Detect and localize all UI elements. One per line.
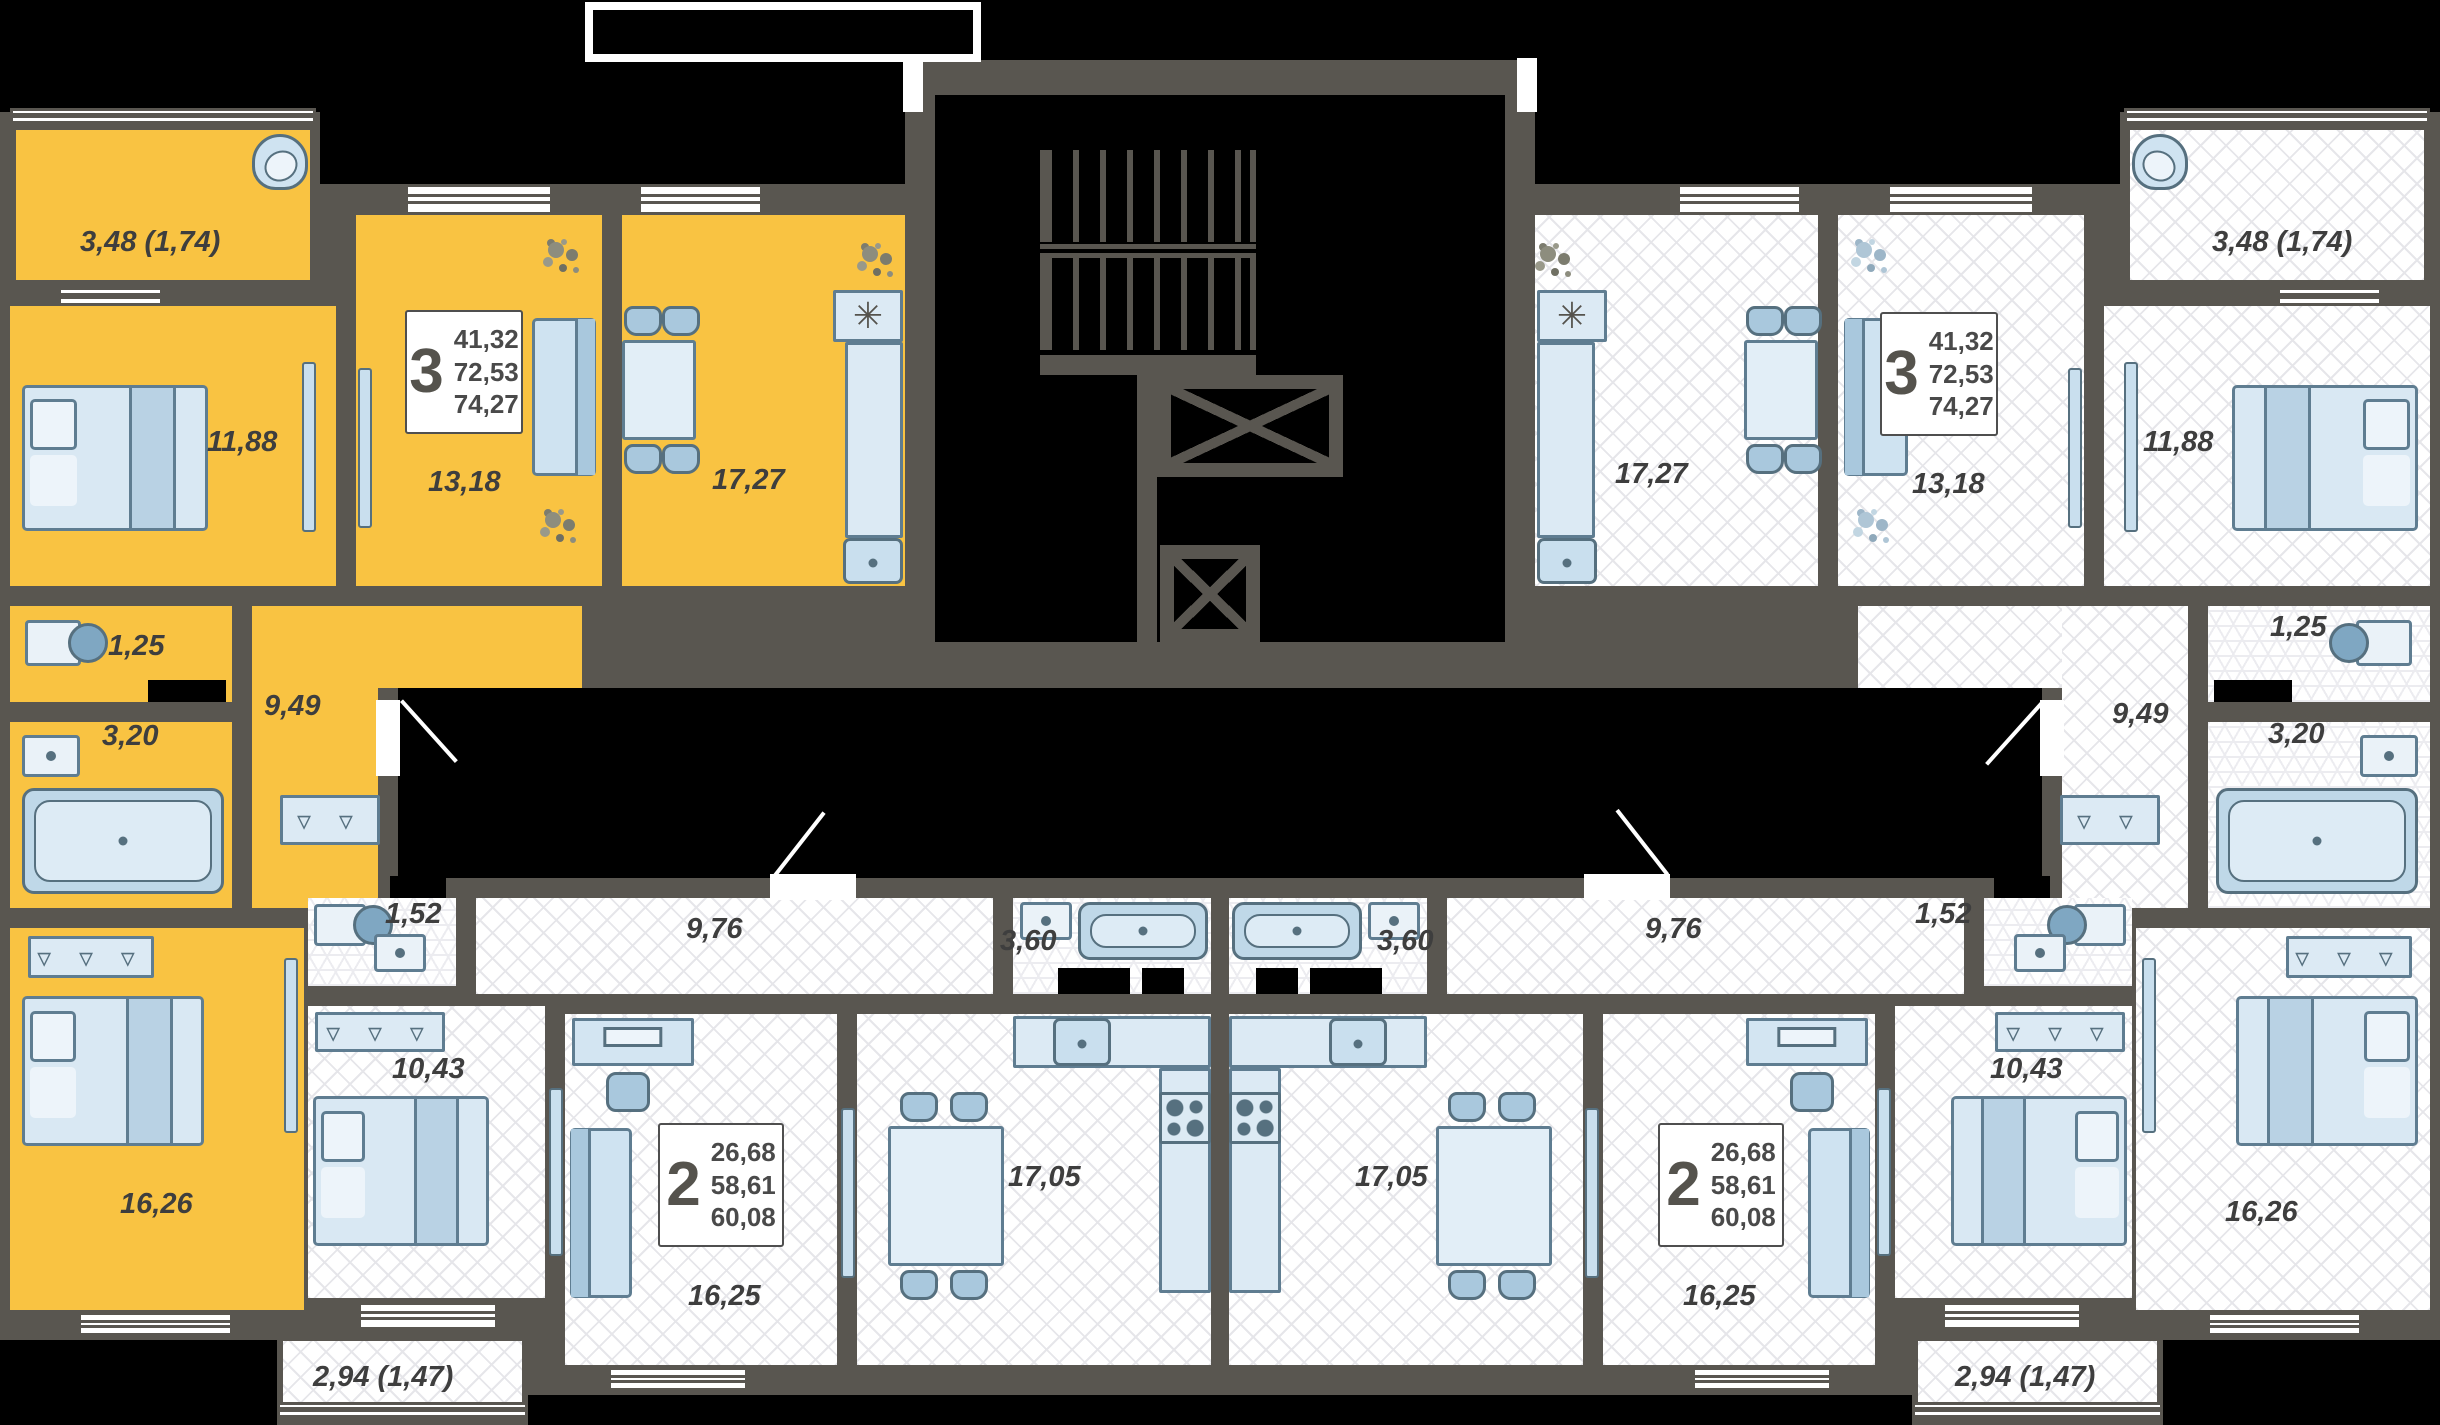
bathtub-icon — [1078, 902, 1208, 960]
chair-icon — [1498, 1270, 1536, 1300]
tv-icon — [284, 958, 298, 1133]
plant-icon — [862, 246, 878, 262]
tv-icon — [302, 362, 316, 532]
tv-icon — [1585, 1108, 1599, 1278]
vent-shaft — [1058, 968, 1130, 994]
sink-icon — [22, 735, 80, 777]
area-total: 60,08 — [711, 1201, 776, 1234]
window — [405, 184, 553, 215]
area-living: 41,32 — [1929, 325, 1994, 358]
washbasin-icon — [252, 134, 308, 190]
wall-opening — [903, 58, 923, 112]
wall-opening — [1517, 58, 1537, 112]
hanger-rack-icon: ▿ ▿ ▿ — [315, 1012, 445, 1052]
room-label: 17,27 — [712, 466, 785, 495]
room-label: 1,25 — [2270, 613, 2326, 642]
desk-icon — [572, 1018, 694, 1066]
room-label: 9,49 — [264, 692, 320, 721]
tv-icon — [2068, 368, 2082, 528]
apartment-info-box: 3 41,32 72,53 74,27 — [1880, 312, 1998, 436]
kitchen-counter — [1013, 1016, 1211, 1068]
toilet-icon — [25, 620, 81, 666]
room-hallway[interactable] — [1447, 898, 1964, 994]
sink-icon — [374, 934, 426, 972]
stove-icon: ✳ — [1537, 290, 1607, 342]
vent-shaft — [1142, 968, 1184, 994]
room-label: 13,18 — [428, 468, 501, 497]
window — [2277, 287, 2382, 306]
plant-icon — [1858, 512, 1874, 528]
room-label: 1,52 — [385, 900, 441, 929]
vent-shaft — [1994, 876, 2050, 898]
corridor — [398, 688, 2042, 878]
area-living: 26,68 — [711, 1136, 776, 1169]
dining-table-icon — [622, 340, 696, 440]
kitchen-counter — [1537, 342, 1595, 538]
room-hallway[interactable] — [252, 606, 378, 908]
chair-icon — [1448, 1092, 1486, 1122]
window — [78, 1312, 233, 1336]
plant-icon — [545, 512, 561, 528]
window — [358, 1302, 498, 1330]
bed-icon — [2232, 385, 2418, 531]
room-label: 3,48 (1,74) — [2212, 228, 2352, 257]
core-wall — [1137, 375, 1157, 642]
chair-icon — [900, 1270, 938, 1300]
window — [2207, 1312, 2362, 1336]
window — [58, 287, 163, 306]
vent-shaft — [2214, 680, 2292, 702]
area-usable: 72,53 — [454, 356, 519, 389]
bed-icon — [313, 1096, 489, 1246]
room-label: 10,43 — [392, 1055, 465, 1084]
entry-door-gap — [376, 700, 400, 776]
chair-icon — [950, 1270, 988, 1300]
bed-icon — [1951, 1096, 2127, 1246]
window — [1887, 184, 2035, 215]
room-label: 16,25 — [1683, 1282, 1756, 1311]
core-wall — [1040, 355, 1256, 375]
sink-icon — [2360, 735, 2418, 777]
vent-shaft — [1310, 968, 1382, 994]
room-count: 2 — [1666, 1154, 1700, 1216]
window — [1942, 1302, 2082, 1330]
vent-shaft — [1256, 968, 1298, 994]
chair-icon — [624, 444, 662, 474]
dining-table-icon — [888, 1126, 1004, 1266]
sofa-icon — [532, 318, 596, 476]
tv-icon — [358, 368, 372, 528]
stove-icon: ✳ — [833, 290, 903, 342]
room-label: 1,25 — [108, 632, 164, 661]
void — [2120, 60, 2440, 112]
kitchen-counter — [1229, 1016, 1427, 1068]
kitchen-counter — [845, 342, 903, 538]
room-label: 16,25 — [688, 1282, 761, 1311]
balcony-parapet — [2124, 108, 2430, 124]
void — [0, 1340, 277, 1425]
balcony-parapet — [10, 108, 316, 124]
void — [1535, 60, 2120, 184]
dining-table-icon — [1744, 340, 1818, 440]
chair-icon — [662, 306, 700, 336]
room-label: 9,76 — [1645, 915, 1701, 944]
entry-door-gap — [1584, 874, 1670, 900]
desk-icon — [1746, 1018, 1868, 1066]
hanger-rack-icon: ▿ ▿ ▿ — [2286, 936, 2412, 978]
chair-icon — [1448, 1270, 1486, 1300]
room-label: 10,43 — [1990, 1055, 2063, 1084]
chair-icon — [1784, 444, 1822, 474]
window — [1692, 1367, 1832, 1391]
bathtub-icon — [1232, 902, 1362, 960]
room-count: 3 — [409, 341, 443, 403]
chair-icon — [1790, 1072, 1834, 1112]
balcony-parapet — [1912, 1402, 2163, 1418]
tv-icon — [2142, 958, 2156, 1133]
bed-icon — [2236, 996, 2418, 1146]
room-label: 16,26 — [120, 1190, 193, 1219]
plant-icon — [1856, 242, 1872, 258]
chair-icon — [1746, 444, 1784, 474]
void — [528, 1395, 1912, 1425]
room-hallway[interactable] — [2062, 606, 2188, 908]
apartment-info-box: 2 26,68 58,61 60,08 — [658, 1123, 784, 1247]
bed-icon — [22, 996, 204, 1146]
area-living: 26,68 — [1711, 1136, 1776, 1169]
area-living: 41,32 — [454, 323, 519, 356]
sink-icon — [2014, 934, 2066, 972]
bathtub-icon — [22, 788, 224, 894]
void — [0, 60, 320, 112]
tv-icon — [549, 1088, 563, 1256]
elevator-shaft-small — [1160, 545, 1260, 643]
room-label: 3,48 (1,74) — [80, 228, 220, 257]
stove-icon — [1159, 1092, 1211, 1144]
room-label: 11,88 — [2143, 428, 2213, 457]
window — [1677, 184, 1802, 215]
roof-outline — [585, 2, 981, 62]
void — [320, 60, 905, 184]
window — [638, 184, 763, 215]
chair-icon — [1784, 306, 1822, 336]
room-label: 1,52 — [1915, 900, 1971, 929]
room-label: 2,94 (1,47) — [1955, 1363, 2095, 1392]
room-count: 3 — [1884, 343, 1918, 405]
window — [608, 1367, 748, 1391]
room-label: 9,76 — [686, 915, 742, 944]
tv-icon — [2124, 362, 2138, 532]
chair-icon — [606, 1072, 650, 1112]
kitchen-sink-icon — [1329, 1018, 1387, 1066]
toilet-icon — [2356, 620, 2412, 666]
area-usable: 58,61 — [1711, 1169, 1776, 1202]
chair-icon — [950, 1092, 988, 1122]
kitchen-sink-icon — [1537, 538, 1597, 584]
room-label: 11,88 — [207, 428, 277, 457]
hanger-rack-icon: ▿ ▿ — [280, 795, 380, 845]
bed-icon — [22, 385, 208, 531]
vent-shaft — [390, 876, 446, 898]
chair-icon — [900, 1092, 938, 1122]
plant-icon — [1540, 246, 1556, 262]
entry-door-gap — [2040, 700, 2064, 776]
stove-icon — [1229, 1092, 1281, 1144]
chair-icon — [662, 444, 700, 474]
toilet-icon — [2074, 904, 2126, 946]
area-usable: 58,61 — [711, 1169, 776, 1202]
kitchen-sink-icon — [1053, 1018, 1111, 1066]
tv-icon — [1877, 1088, 1891, 1256]
hanger-rack-icon: ▿ ▿ ▿ — [28, 936, 154, 978]
area-total: 74,27 — [454, 388, 519, 421]
room-label: 17,05 — [1355, 1163, 1428, 1192]
room-label: 3,60 — [1000, 927, 1056, 956]
plant-icon — [548, 242, 564, 258]
elevator-shaft-large — [1157, 375, 1343, 477]
washbasin-icon — [2132, 134, 2188, 190]
area-usable: 72,53 — [1929, 358, 1994, 391]
hanger-rack-icon: ▿ ▿ — [2060, 795, 2160, 845]
vent-shaft — [148, 680, 226, 702]
kitchen-sink-icon — [843, 538, 903, 584]
room-label: 17,05 — [1008, 1163, 1081, 1192]
room-label: 3,60 — [1377, 927, 1433, 956]
tv-icon — [841, 1108, 855, 1278]
area-total: 60,08 — [1711, 1201, 1776, 1234]
chair-icon — [1498, 1092, 1536, 1122]
apartment-info-box: 3 41,32 72,53 74,27 — [405, 310, 523, 434]
room-label: 13,18 — [1912, 470, 1985, 499]
room-label: 3,20 — [2268, 720, 2324, 749]
entry-door-gap — [770, 874, 856, 900]
floor-plan: 3,48 (1,74) 11,88 13,18 17,27 1,25 3,20 … — [0, 0, 2440, 1425]
area-total: 74,27 — [1929, 390, 1994, 423]
room-count: 2 — [666, 1154, 700, 1216]
staircase-flight-upper — [1040, 150, 1256, 242]
room-label: 16,26 — [2225, 1198, 2298, 1227]
room-label: 9,49 — [2112, 700, 2168, 729]
toilet-icon — [314, 904, 366, 946]
sofa-icon — [1808, 1128, 1870, 1298]
staircase-flight-lower — [1040, 258, 1256, 350]
hanger-rack-icon: ▿ ▿ ▿ — [1995, 1012, 2125, 1052]
chair-icon — [1746, 306, 1784, 336]
room-label: 17,27 — [1615, 460, 1688, 489]
dining-table-icon — [1436, 1126, 1552, 1266]
apartment-info-box: 2 26,68 58,61 60,08 — [1658, 1123, 1784, 1247]
room-label: 2,94 (1,47) — [313, 1363, 453, 1392]
room-label: 3,20 — [102, 722, 158, 751]
chair-icon — [624, 306, 662, 336]
balcony-parapet — [277, 1402, 528, 1418]
staircase-landing — [1040, 242, 1256, 258]
void — [2163, 1340, 2440, 1425]
sofa-icon — [570, 1128, 632, 1298]
bathtub-icon — [2216, 788, 2418, 894]
